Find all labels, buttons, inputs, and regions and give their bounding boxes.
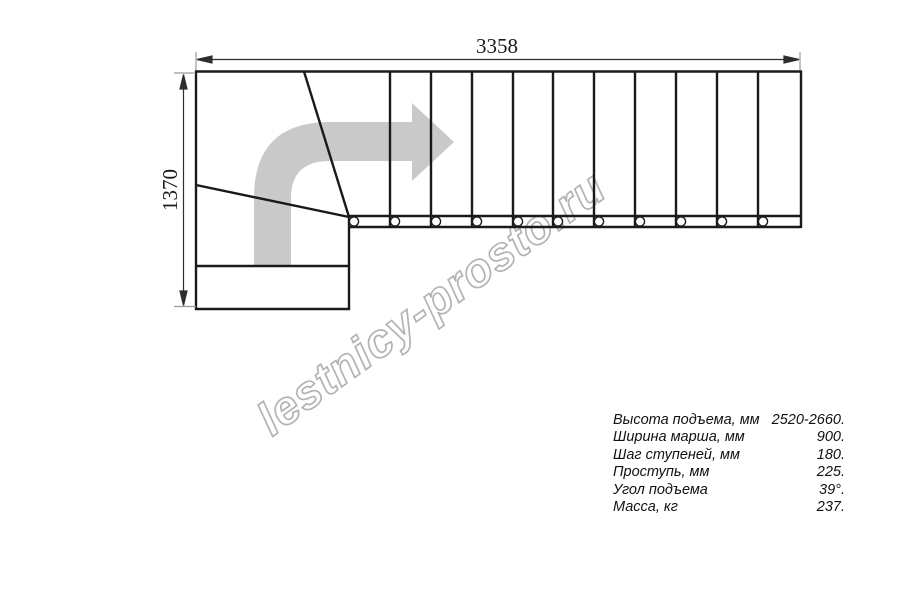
spec-value: 237. (807, 499, 845, 516)
baluster-circle (390, 217, 399, 226)
spec-value: 900. (807, 429, 845, 446)
baluster-circle (513, 217, 522, 226)
baluster-circle (472, 217, 481, 226)
spec-row: Проступь, мм 225. (613, 464, 845, 481)
spec-row: Шаг ступеней, мм 180. (613, 447, 845, 464)
spec-label: Проступь, мм (613, 464, 709, 481)
baluster-circle (758, 217, 767, 226)
spec-label: Масса, кг (613, 499, 678, 516)
baluster-row (349, 217, 767, 226)
baluster-circle (635, 217, 644, 226)
spec-row: Масса, кг 237. (613, 499, 845, 516)
spec-row: Высота подъема, мм 2520-2660. (613, 412, 845, 429)
width-dimension-label: 3358 (476, 34, 518, 58)
baluster-circle (676, 217, 685, 226)
baluster-circle (349, 217, 358, 226)
spec-table: Высота подъема, мм 2520-2660. Ширина мар… (613, 412, 845, 516)
dim-arrowhead-top (180, 75, 187, 90)
baluster-circle (594, 217, 603, 226)
spec-value: 180. (807, 447, 845, 464)
baluster-circle (717, 217, 726, 226)
dim-arrowhead-bottom (180, 291, 187, 306)
spec-value: 225. (807, 464, 845, 481)
height-dimension-label: 1370 (158, 169, 182, 211)
dim-arrowhead-left (197, 56, 212, 63)
spec-label: Угол подъема (613, 482, 708, 499)
baluster-circle (553, 217, 562, 226)
spec-label: Шаг ступеней, мм (613, 447, 740, 464)
spec-label: Высота подъема, мм (613, 412, 760, 429)
direction-arrow (254, 103, 454, 266)
spec-label: Ширина марша, мм (613, 429, 745, 446)
spec-row: Угол подъема 39°. (613, 482, 845, 499)
spec-row: Ширина марша, мм 900. (613, 429, 845, 446)
baluster-circle (431, 217, 440, 226)
spec-value: 2520-2660. (762, 412, 845, 429)
staircase-drawing-page: lestnicy-prosto.ru (0, 0, 900, 600)
dim-arrowhead-right (784, 56, 799, 63)
spec-value: 39°. (809, 482, 845, 499)
